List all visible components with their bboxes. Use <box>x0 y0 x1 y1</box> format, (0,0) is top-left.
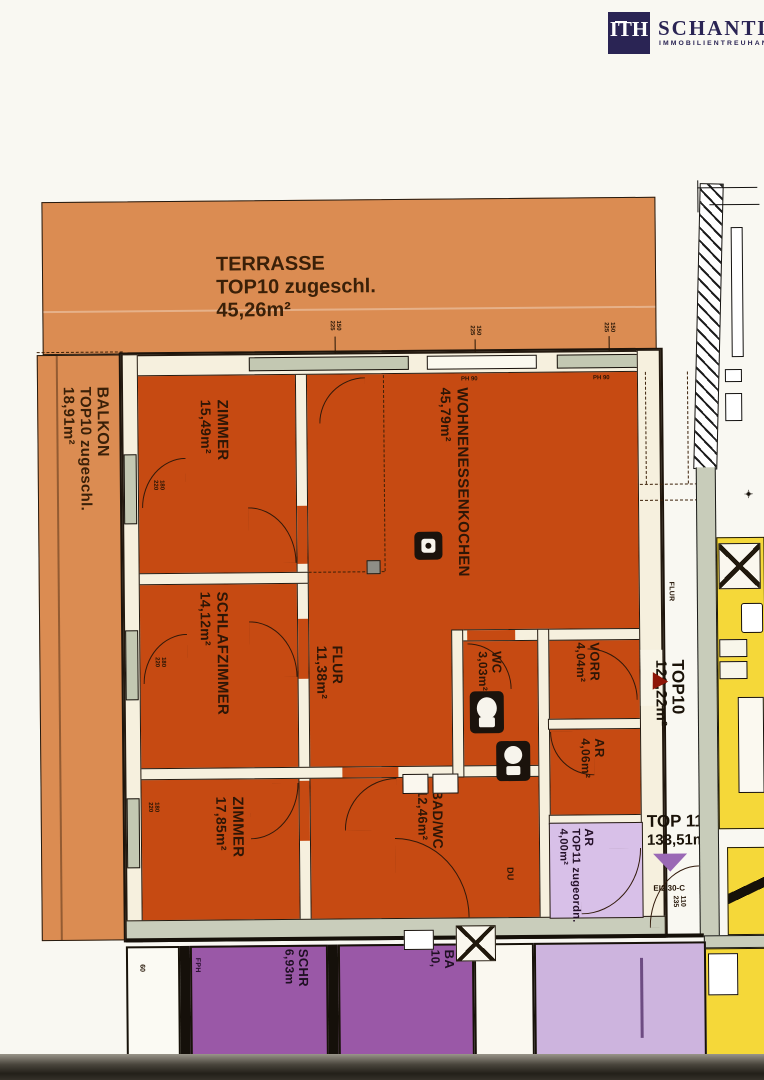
neighbour-box-1 <box>719 639 747 657</box>
zimmer1-label: ZIMMER 15,49m² <box>197 399 230 460</box>
bottom-fixture-box <box>404 930 434 950</box>
fire-door-class-label: EI2 30-C <box>653 884 685 893</box>
dim-tick-1 <box>335 337 336 354</box>
neighbour-counter <box>738 697 764 793</box>
parapet-label-2: PH 90 <box>593 375 610 382</box>
top10-name: TOP10 <box>668 659 688 726</box>
ar-top11-name: AR <box>581 828 595 922</box>
wohnkueche-name: WOHNENESSENKOCHEN <box>453 387 471 576</box>
zimmer2-label: ZIMMER 17,85m² <box>213 796 246 857</box>
schrank-name: SCHR <box>295 949 310 987</box>
balkon-area: 18,91m² <box>59 387 77 511</box>
stair-bar <box>731 227 744 357</box>
dashed-line-right-2 <box>687 371 689 483</box>
grey-band-bottom-right <box>704 935 764 949</box>
terrasse-label: TERRASSE TOP10 zugeschl. 45,26m² <box>216 252 376 322</box>
balkon-note: TOP10 zugeschl. <box>76 387 94 511</box>
stair-box-2 <box>725 393 742 421</box>
neighbour-room-yellow-2 <box>727 847 764 935</box>
ar-top11-area: 4,00m² <box>557 829 570 923</box>
bad-unten-area: 10, <box>428 950 442 970</box>
badwc-label: BAD/WC 12,46m² <box>415 790 446 850</box>
dim-60-label: 60 <box>138 964 145 972</box>
vorraum-area: 4,04m² <box>573 642 587 682</box>
washer-icon-2 <box>432 774 458 794</box>
scan-edge-band <box>0 1054 764 1080</box>
window-dim-top-3: 150225 <box>602 322 615 332</box>
dim-line-topright-1 <box>697 187 757 189</box>
neighbour-sink-icon <box>741 603 763 633</box>
ar-top11-label: AR TOP11 zugeordn. 4,00m² <box>557 828 596 922</box>
flur-label: FLUR11,38m² <box>313 645 345 699</box>
stair-box-1 <box>725 369 742 382</box>
terrasse-name: TERRASSE <box>216 252 376 276</box>
badwc-name: BAD/WC <box>429 790 445 849</box>
corridor-flur-label: FLUR <box>667 582 675 602</box>
badwc-area: 12,46m² <box>415 790 430 849</box>
schlafzimmer-name: SCHLAFZIMMER <box>212 591 230 715</box>
bad-unten-name: BA <box>441 950 456 970</box>
bottom-x-box-icon <box>456 925 496 961</box>
top10-unit-label: TOP10 129,22m² <box>651 659 687 726</box>
floorplan-scan: ITH SCHANTL IMMOBILIENTREUHAND TERRASSE … <box>0 0 764 1080</box>
terrasse-area: 45,26m² <box>216 298 376 322</box>
star-mark-icon: ✦ <box>744 489 753 502</box>
zimmer2-name: ZIMMER <box>228 796 245 857</box>
dim-line-topright-2 <box>709 204 759 205</box>
zimmer2-area: 17,85m² <box>213 797 229 858</box>
plan: TERRASSE TOP10 zugeschl. 45,26m² BALKON … <box>0 0 764 1080</box>
neighbour-box-2 <box>719 661 747 679</box>
dim-tick-3 <box>609 336 610 351</box>
fire-door-size-label: 110235 <box>671 896 686 908</box>
appliance-x-icon <box>718 543 760 589</box>
dashed-line-right-4 <box>640 499 698 501</box>
toilet-icon <box>470 691 504 733</box>
balkon-name: BALKON <box>93 387 112 511</box>
fph-label: FPH <box>193 958 201 973</box>
window-dim-left-3: 180220 <box>147 802 160 812</box>
stove-icon <box>414 532 442 560</box>
window-dim-top-2: 150225 <box>468 325 481 335</box>
bad-unten-label: BA 10, <box>428 950 456 970</box>
zimmer1-area: 15,49m² <box>197 400 213 461</box>
terrasse-note: TOP10 zugeschl. <box>216 275 376 299</box>
dim-tick-2 <box>475 339 476 352</box>
flur-area: 11,38m² <box>313 646 329 700</box>
window-dim-top-1: 150225 <box>328 321 341 331</box>
washer-icon <box>402 774 428 794</box>
schrank-area: 6,93m <box>282 949 296 987</box>
hatched-wall <box>693 183 723 469</box>
schlafzimmer-area: 14,12m² <box>197 592 214 716</box>
parapet-label-1: PH 90 <box>461 376 478 383</box>
dashed-line-right-3 <box>640 483 698 485</box>
balkon-label: BALKON TOP10 zugeschl. 18,91m² <box>59 387 112 512</box>
schrank-label: SCHR 6,93m <box>282 949 310 987</box>
zimmer1-name: ZIMMER <box>213 399 230 460</box>
shower-label: DU <box>505 867 515 881</box>
ar-top11-note: TOP11 zugeordn. <box>569 828 582 922</box>
schlafzimmer-label: SCHLAFZIMMER 14,12m² <box>197 591 231 715</box>
neighbour-window-box <box>708 953 738 995</box>
flur-name: FLUR <box>329 645 345 699</box>
dim-tick-topright <box>697 180 698 212</box>
sink-icon <box>496 741 530 781</box>
